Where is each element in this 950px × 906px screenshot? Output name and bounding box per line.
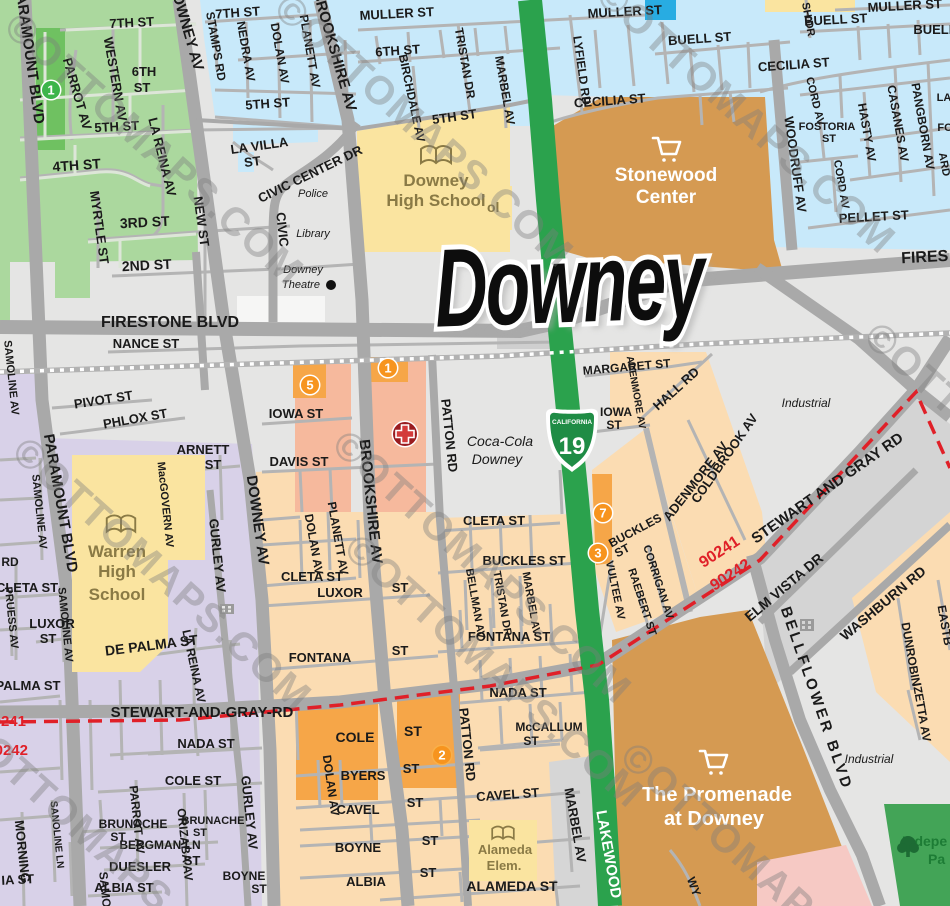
svg-text:2: 2 — [438, 748, 445, 763]
svg-text:1: 1 — [384, 361, 391, 376]
svg-text:STEWART-AND-GRAY-RD: STEWART-AND-GRAY-RD — [111, 704, 294, 721]
svg-text:Center: Center — [636, 187, 697, 208]
svg-text:BYERS: BYERS — [341, 768, 386, 783]
svg-text:7TH ST: 7TH ST — [215, 3, 261, 21]
svg-text:2ND ST: 2ND ST — [121, 256, 172, 275]
svg-text:DAVIS ST: DAVIS ST — [270, 454, 329, 469]
svg-text:FIRES: FIRES — [901, 248, 949, 267]
svg-text:BOYNE: BOYNE — [223, 869, 266, 883]
svg-text:Industrial: Industrial — [845, 752, 894, 766]
svg-text:ST: ST — [205, 457, 222, 472]
svg-text:FONTANA: FONTANA — [289, 650, 352, 665]
svg-text:LUXOR: LUXOR — [317, 585, 363, 600]
svg-text:BUELL ST: BUELL ST — [913, 22, 950, 37]
svg-text:FO: FO — [937, 122, 950, 134]
svg-text:Police: Police — [298, 188, 328, 200]
svg-text:IA ST: IA ST — [1, 871, 35, 888]
svg-text:7: 7 — [599, 506, 606, 521]
svg-text:LA: LA — [937, 92, 950, 104]
svg-text:IOWA ST: IOWA ST — [269, 406, 323, 421]
svg-text:FIRESTONE BLVD: FIRESTONE BLVD — [101, 314, 239, 331]
svg-text:FOSTORIA: FOSTORIA — [799, 121, 856, 133]
svg-text:Industrial: Industrial — [782, 396, 831, 410]
svg-text:BOYNE: BOYNE — [335, 840, 382, 855]
svg-text:ST: ST — [606, 418, 622, 432]
svg-text:ST: ST — [403, 761, 420, 776]
svg-text:ST: ST — [422, 833, 439, 848]
svg-text:PALMA ST: PALMA ST — [0, 678, 61, 693]
svg-text:ST: ST — [251, 882, 267, 896]
svg-text:ST: ST — [822, 133, 836, 145]
svg-text:ST: ST — [184, 853, 201, 868]
svg-text:BRUNACHE: BRUNACHE — [182, 815, 245, 827]
svg-text:COLE ST: COLE ST — [165, 773, 221, 788]
svg-text:Downey: Downey — [472, 451, 524, 467]
svg-text:Pa: Pa — [928, 851, 945, 867]
svg-text:ALAMEDA ST: ALAMEDA ST — [466, 878, 558, 894]
svg-text:ST: ST — [243, 153, 262, 170]
svg-text:4TH ST: 4TH ST — [52, 155, 102, 174]
svg-text:Coca-Cola: Coca-Cola — [467, 433, 533, 449]
svg-text:ST: ST — [392, 643, 409, 658]
svg-text:3RD ST: 3RD ST — [119, 213, 170, 232]
svg-text:ALBIA: ALBIA — [346, 874, 386, 889]
svg-text:School: School — [89, 585, 146, 604]
svg-text:ST: ST — [407, 795, 424, 810]
svg-text:3: 3 — [594, 546, 601, 561]
svg-text:ST: ST — [40, 631, 57, 646]
svg-text:Elem.: Elem. — [487, 858, 522, 873]
svg-text:5: 5 — [306, 378, 313, 393]
svg-text:Stonewood: Stonewood — [615, 165, 717, 186]
svg-text:6TH: 6TH — [132, 64, 157, 79]
svg-text:CLETA ST: CLETA ST — [463, 513, 525, 528]
svg-text:Library: Library — [296, 228, 331, 240]
svg-text:ST: ST — [134, 80, 151, 95]
svg-text:CAVEL: CAVEL — [336, 802, 379, 817]
svg-text:ST: ST — [404, 723, 422, 739]
svg-text:ST: ST — [420, 865, 437, 880]
svg-text:19: 19 — [559, 433, 586, 460]
svg-text:IOWA: IOWA — [600, 405, 632, 419]
svg-text:LUXOR: LUXOR — [29, 616, 75, 631]
svg-text:7TH ST: 7TH ST — [109, 14, 155, 31]
svg-text:CALIFORNIA: CALIFORNIA — [552, 419, 592, 426]
svg-text:Alameda: Alameda — [478, 842, 533, 857]
svg-text:5TH ST: 5TH ST — [245, 94, 291, 112]
svg-text:NANCE ST: NANCE ST — [113, 336, 180, 351]
svg-text:90241: 90241 — [0, 713, 26, 730]
svg-text:COLE: COLE — [336, 729, 375, 745]
svg-text:RD: RD — [1, 555, 19, 569]
svg-text:ARNETT: ARNETT — [177, 442, 230, 457]
svg-text:NADA ST: NADA ST — [177, 736, 234, 751]
